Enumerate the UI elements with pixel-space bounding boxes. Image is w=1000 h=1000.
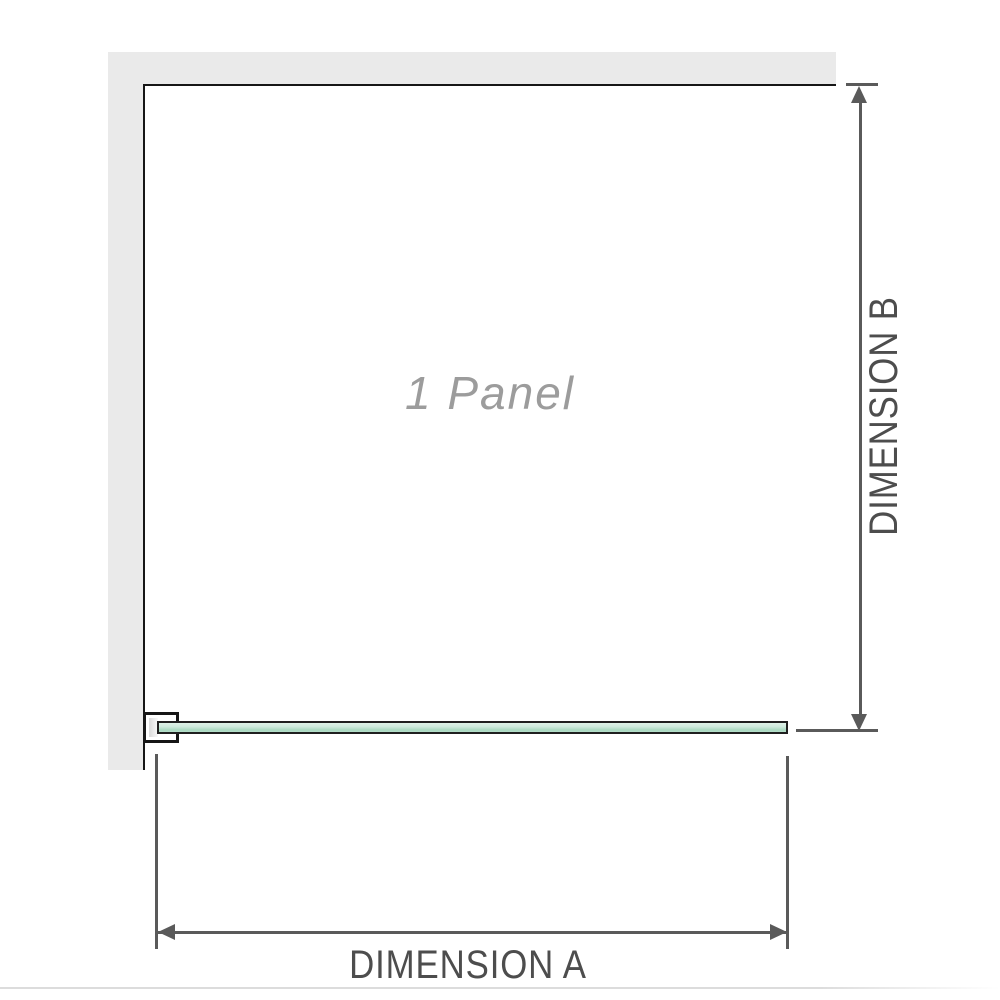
dimension-a-extension-right <box>786 756 789 949</box>
dimension-a-line <box>157 931 787 934</box>
dimension-b-arrow-down-icon <box>851 714 867 731</box>
wall-inner-edge-left <box>143 84 145 770</box>
wall-inner-edge-top <box>143 84 836 86</box>
dimension-a-extension-left <box>155 754 158 949</box>
dimension-a-label: DIMENSION A <box>349 945 587 985</box>
shower-panel-dimension-diagram: 1 Panel DIMENSION B DIMENSION A <box>0 0 1000 1000</box>
wall-left <box>108 52 143 770</box>
glass-panel-bar <box>157 721 788 734</box>
dimension-a-arrow-right-icon <box>770 924 787 940</box>
dimension-a-arrow-left-icon <box>158 924 175 940</box>
dimension-b-label: DIMENSION B <box>864 296 904 536</box>
dimension-b-arrow-up-icon <box>851 86 867 103</box>
wall-top <box>108 52 836 84</box>
image-bottom-divider <box>0 987 1000 989</box>
panel-count-label: 1 Panel <box>143 368 837 419</box>
